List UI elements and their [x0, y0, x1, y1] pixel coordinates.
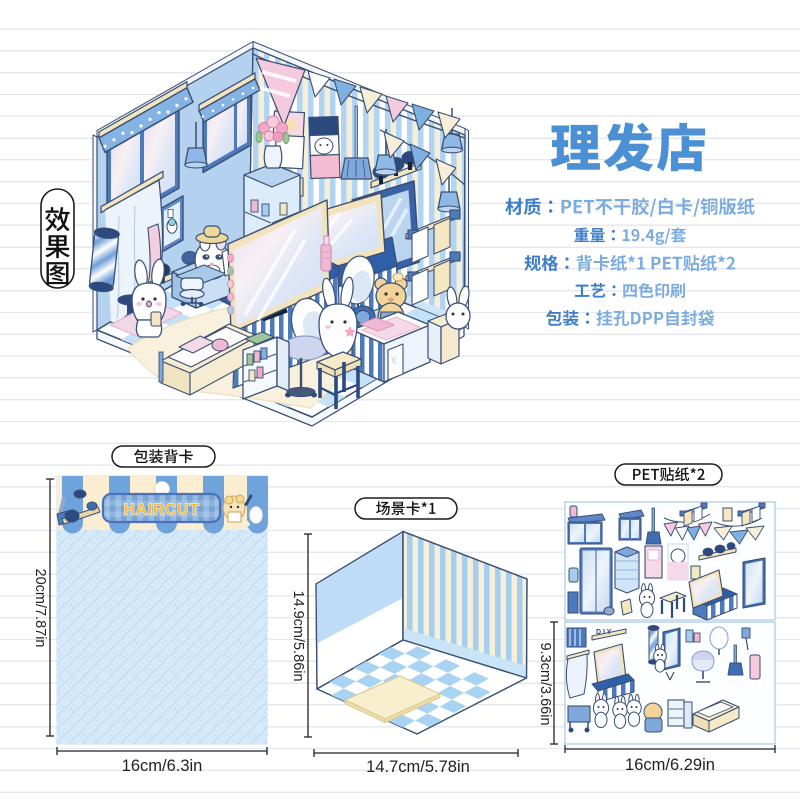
svg-text:14.9cm/5.86in: 14.9cm/5.86in [290, 590, 306, 681]
svg-text:16cm/6.3in: 16cm/6.3in [122, 757, 203, 775]
svg-text:20cm/7.87in: 20cm/7.87in [32, 569, 48, 648]
svg-text:D I Y: D I Y [596, 629, 612, 636]
svg-text:16cm/6.29in: 16cm/6.29in [625, 756, 715, 774]
svg-text:14.7cm/5.78in: 14.7cm/5.78in [366, 758, 470, 776]
svg-text:HAIRCUT: HAIRCUT [123, 502, 199, 519]
svg-text:9.3cm/3.66in: 9.3cm/3.66in [537, 642, 553, 725]
